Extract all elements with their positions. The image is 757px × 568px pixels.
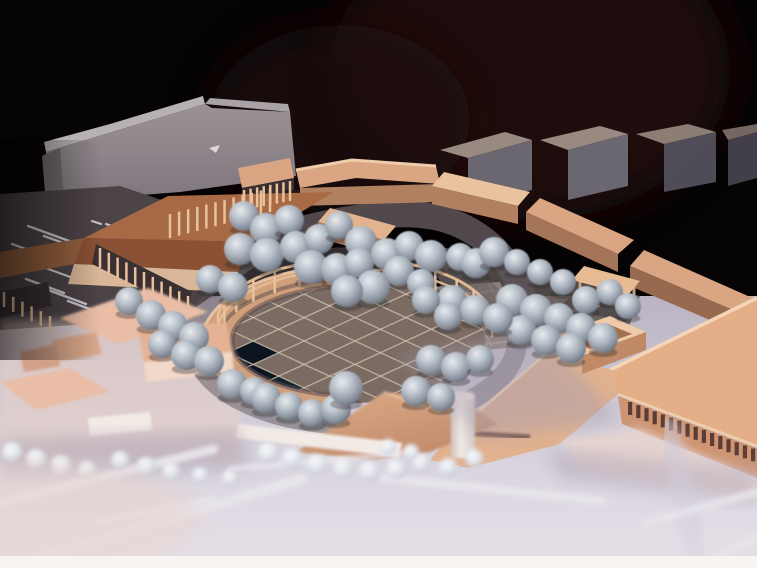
tree [527,259,553,285]
window-slot [685,424,689,437]
tree [434,302,462,330]
tree [250,238,284,272]
window-slot [636,405,640,418]
window-slot [644,408,648,421]
tree [331,275,363,307]
photo-border [0,556,757,568]
tree [483,303,513,333]
left-vignette [0,140,100,360]
tree [504,249,530,275]
tree [615,293,641,319]
tree [329,371,363,405]
window-slot [694,427,698,440]
foreground-haze [0,455,757,568]
window-slot [702,430,706,443]
tree [274,205,304,235]
tree [415,240,447,272]
window-slot [710,433,714,446]
tree [588,323,618,353]
window-slot [726,439,730,452]
tree [401,376,431,406]
tree [466,345,494,373]
model-photograph [0,0,757,568]
window-slot [718,436,722,449]
block-face [728,132,757,186]
window-slot [628,402,632,415]
small-tree [380,439,396,455]
window-slot [735,442,739,455]
model-photo-canvas [0,0,757,568]
tree [572,286,600,314]
tree [194,346,224,376]
tree [427,383,455,411]
tree [550,269,576,295]
tree [556,333,586,363]
tree [218,272,248,302]
window-slot [653,411,657,424]
